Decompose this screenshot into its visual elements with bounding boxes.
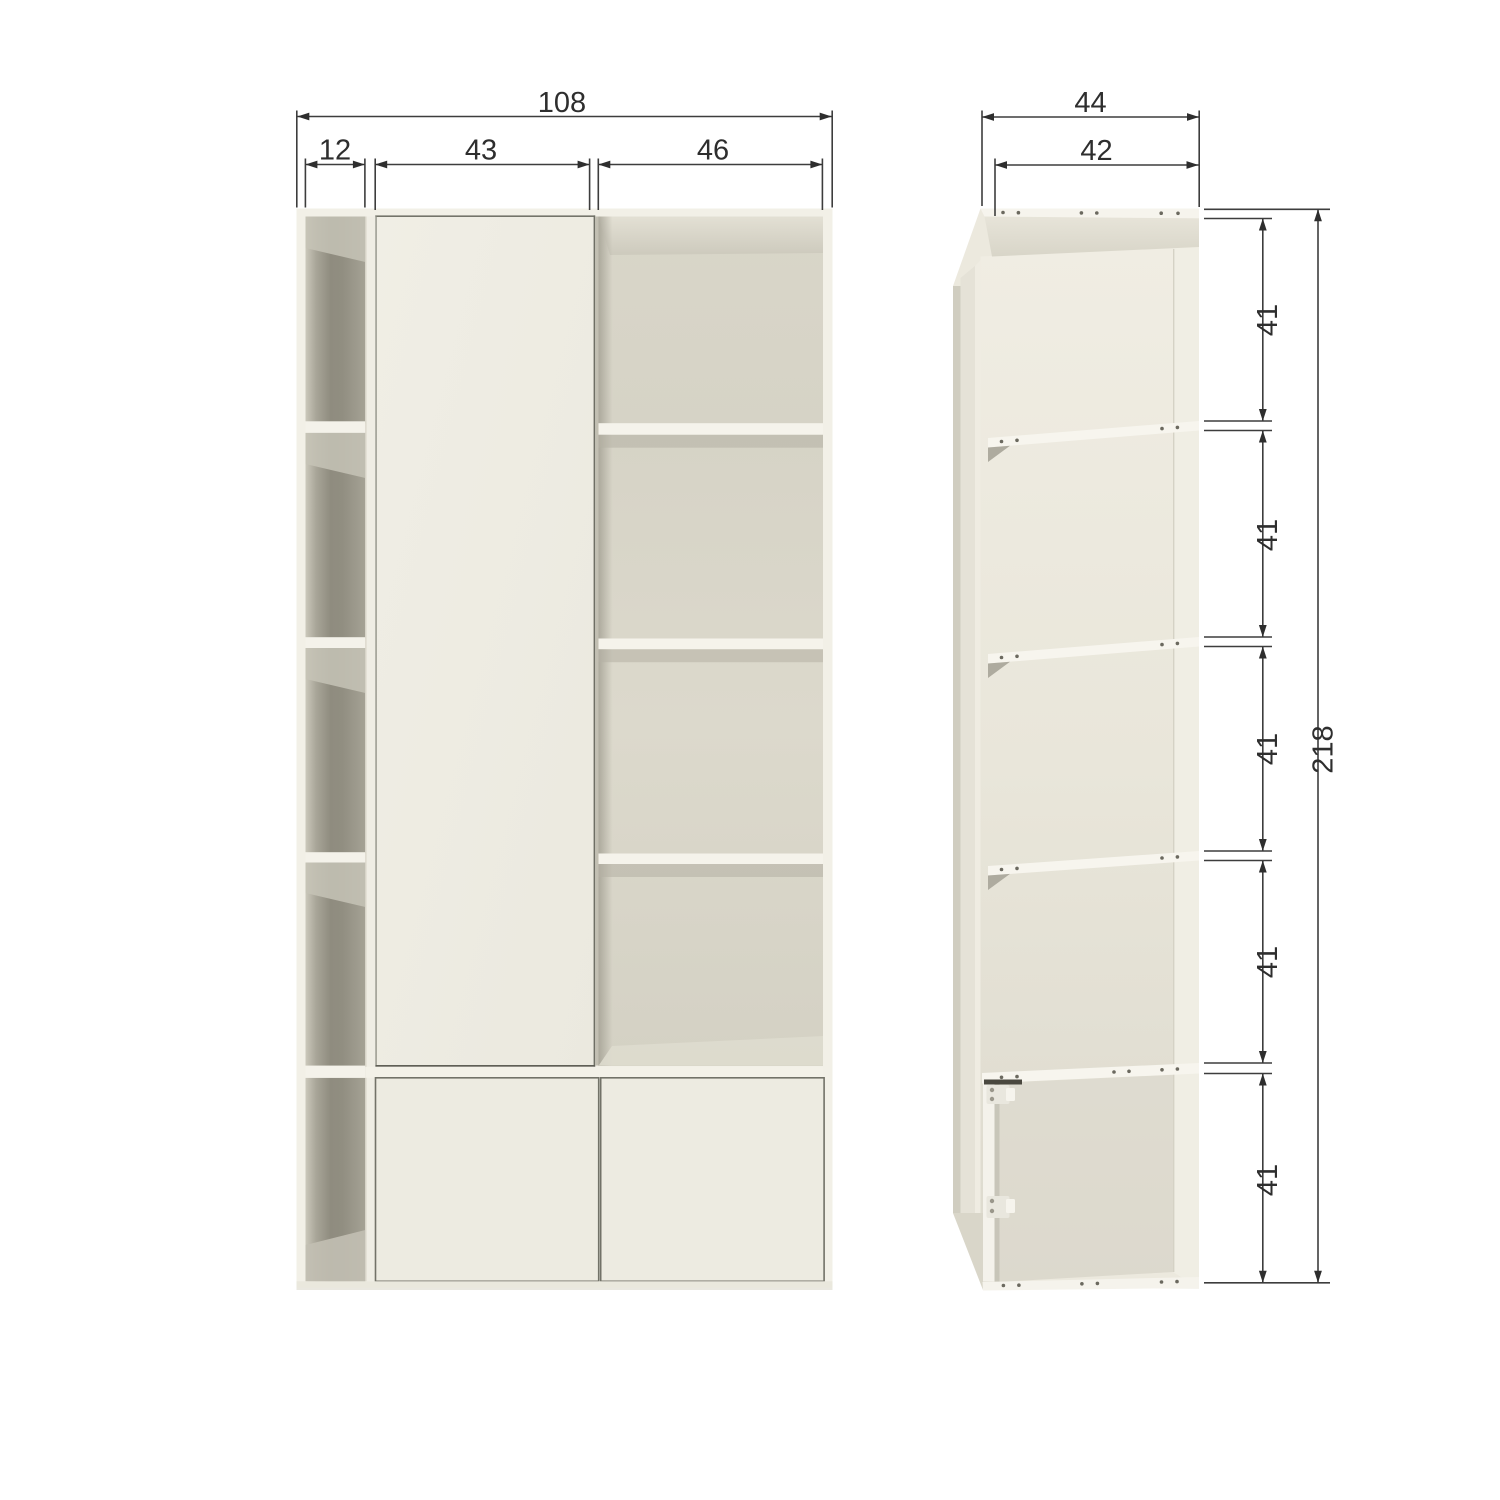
svg-text:41: 41 bbox=[1252, 1164, 1284, 1196]
svg-text:41: 41 bbox=[1252, 519, 1284, 551]
svg-text:41: 41 bbox=[1252, 946, 1284, 978]
svg-text:43: 43 bbox=[465, 135, 497, 167]
svg-text:44: 44 bbox=[1074, 87, 1106, 119]
svg-text:218: 218 bbox=[1308, 725, 1340, 773]
svg-text:12: 12 bbox=[319, 135, 351, 167]
svg-text:108: 108 bbox=[538, 87, 586, 119]
svg-text:46: 46 bbox=[697, 135, 729, 167]
svg-text:41: 41 bbox=[1252, 304, 1284, 336]
svg-text:41: 41 bbox=[1252, 733, 1284, 765]
svg-text:42: 42 bbox=[1080, 135, 1112, 167]
